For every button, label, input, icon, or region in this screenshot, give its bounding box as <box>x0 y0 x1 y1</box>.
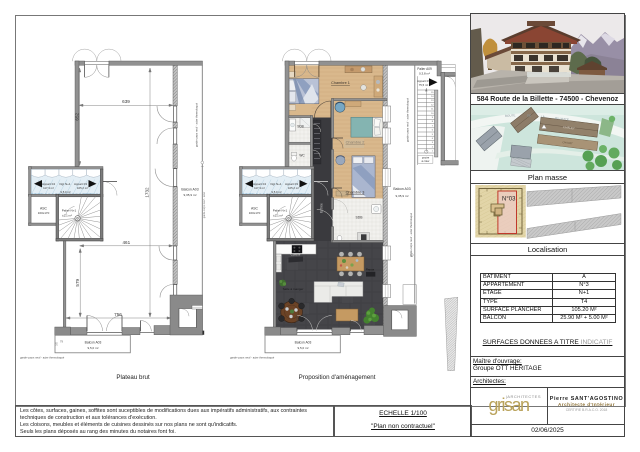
svg-text:9,35,9 m²: 9,35,9 m² <box>395 194 408 198</box>
svg-text:Balcon A03: Balcon A03 <box>85 341 102 345</box>
svg-text:11: 11 <box>431 109 434 111</box>
svg-text:9,35,9 m²: 9,35,9 m² <box>183 193 196 197</box>
svg-text:10: 10 <box>431 113 434 115</box>
svg-text:79: 79 <box>60 339 63 343</box>
svg-text:Balcon A03: Balcon A03 <box>181 188 198 192</box>
svg-text:Palier N+1: Palier N+1 <box>273 209 288 213</box>
svg-text:3: 3 <box>432 142 434 144</box>
svg-text:±2,1 m²: ±2,1 m² <box>273 214 283 218</box>
svg-text:garde-corps neuf - acier therm: garde-corps neuf - acier thermolaqué <box>230 356 275 360</box>
svg-text:ASC: ASC <box>40 207 48 211</box>
svg-text:5: 5 <box>432 134 434 136</box>
svg-text:Palier N+1: Palier N+1 <box>62 209 77 213</box>
svg-text:105,2 m²: 105,2 m² <box>288 186 299 190</box>
svg-text:Balcon A03: Balcon A03 <box>295 341 312 345</box>
svg-text:SDB: SDB <box>356 216 364 220</box>
svg-text:9,5,0 m²: 9,5,0 m² <box>271 190 281 194</box>
svg-text:Proposition d'aménagement: Proposition d'aménagement <box>299 374 376 381</box>
svg-text:9,5,0 m²: 9,5,0 m² <box>297 346 308 350</box>
svg-text:14: 14 <box>431 96 434 98</box>
svg-text:1: 1 <box>432 151 434 153</box>
svg-text:Chambre 1: Chambre 1 <box>331 81 350 85</box>
svg-text:garde-corps neuf - acier therm: garde-corps neuf - acier thermolaqué <box>20 356 65 360</box>
svg-text:6: 6 <box>432 130 434 132</box>
svg-text:garde-corps neuf - acier therm: garde-corps neuf - acier thermolaqué <box>194 102 198 147</box>
svg-text:à créer: à créer <box>421 159 429 163</box>
svg-text:4: 4 <box>432 138 434 140</box>
svg-text:garde-corps neuf - acier therm: garde-corps neuf - acier thermolaqué <box>406 97 410 142</box>
svg-text:160x170: 160x170 <box>38 211 50 215</box>
svg-text:579: 579 <box>75 278 80 286</box>
svg-text:SDB: SDB <box>297 124 304 128</box>
svg-text:15: 15 <box>431 92 434 94</box>
svg-text:756: 756 <box>114 312 122 317</box>
svg-text:2: 2 <box>432 146 434 148</box>
svg-text:9: 9 <box>432 117 434 119</box>
svg-text:1732: 1732 <box>145 187 150 198</box>
svg-text:160x170: 160x170 <box>249 211 261 215</box>
svg-text:±2,1 m²: ±2,1 m² <box>62 214 72 218</box>
svg-text:Chambre 3: Chambre 3 <box>346 190 365 194</box>
svg-text:Dgt N+1: Dgt N+1 <box>59 182 70 186</box>
svg-text:ROUTE: ROUTE <box>505 113 516 118</box>
svg-text:ASC: ASC <box>251 207 259 211</box>
svg-text:461: 461 <box>122 240 130 245</box>
svg-text:9,5,0 m²: 9,5,0 m² <box>60 190 70 194</box>
svg-text:117,3 m²: 117,3 m² <box>254 186 265 190</box>
svg-text:639: 639 <box>122 99 130 104</box>
svg-text:117,3 m²: 117,3 m² <box>43 186 54 190</box>
svg-text:WC: WC <box>299 154 305 158</box>
svg-text:9,5,0 m²: 9,5,0 m² <box>87 346 98 350</box>
svg-text:165: 165 <box>57 341 59 346</box>
svg-text:garde-corps neuf - acier therm: garde-corps neuf - acier thermolaqué <box>409 212 413 257</box>
svg-text:7: 7 <box>432 125 434 127</box>
svg-text:652: 652 <box>74 112 79 120</box>
svg-text:Plateau brut: Plateau brut <box>116 374 150 381</box>
svg-text:Cuisine: Cuisine <box>291 253 301 257</box>
svg-text:garde-corps neuf - acier: garde-corps neuf - acier <box>203 192 206 219</box>
svg-text:0,3,8 m²: 0,3,8 m² <box>419 72 430 76</box>
svg-text:12: 12 <box>431 104 434 106</box>
svg-text:8: 8 <box>432 121 434 123</box>
svg-text:Palier A09: Palier A09 <box>417 67 432 71</box>
svg-text:75,5 m²: 75,5 m² <box>419 83 429 87</box>
svg-text:Dgt N+1: Dgt N+1 <box>270 182 281 186</box>
svg-text:Salle à manger: Salle à manger <box>283 287 304 291</box>
svg-text:105,2 m²: 105,2 m² <box>77 186 88 190</box>
svg-text:13: 13 <box>431 100 434 102</box>
svg-text:Repas: Repas <box>366 268 375 272</box>
svg-text:DE: DE <box>527 114 531 118</box>
svg-text:LA: LA <box>541 114 545 118</box>
svg-text:Balcon A03: Balcon A03 <box>393 187 410 191</box>
svg-text:Entrée: Entrée <box>320 203 324 213</box>
svg-text:N°03: N°03 <box>502 197 516 203</box>
